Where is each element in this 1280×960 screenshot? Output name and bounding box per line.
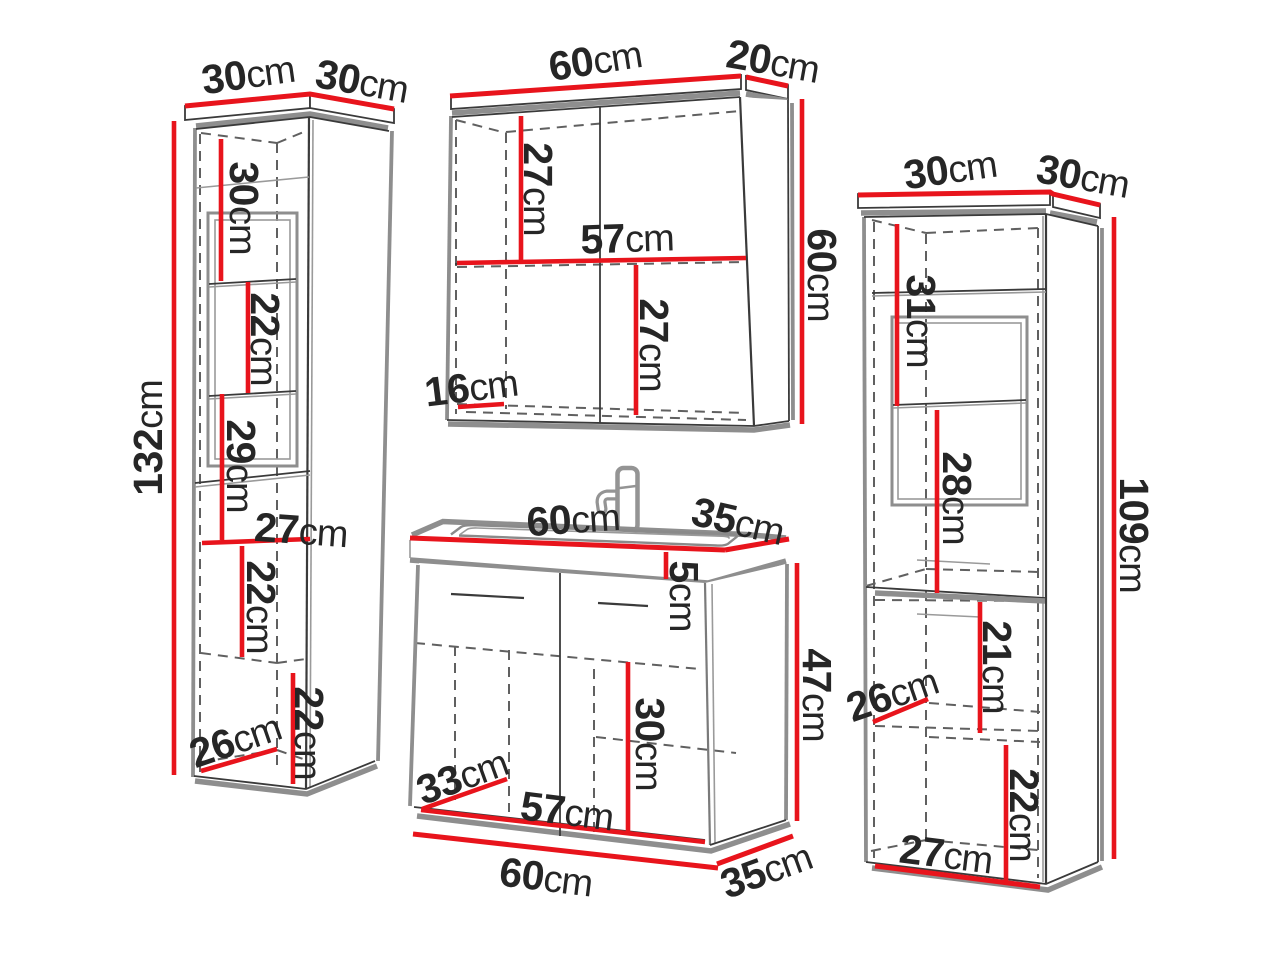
svg-text:31cm: 31cm [898,274,944,367]
svg-text:109cm: 109cm [1111,477,1157,593]
svg-text:22cm: 22cm [1001,768,1047,861]
svg-text:132cm: 132cm [125,380,171,496]
svg-text:30cm: 30cm [221,161,267,254]
svg-text:57cm: 57cm [580,213,675,262]
svg-text:30cm: 30cm [627,697,673,790]
svg-text:27cm: 27cm [631,298,677,391]
svg-text:27cm: 27cm [515,142,561,235]
svg-text:22cm: 22cm [242,292,288,385]
svg-text:47cm: 47cm [794,648,840,741]
svg-text:22cm: 22cm [286,686,332,779]
svg-text:60cm: 60cm [799,228,845,321]
svg-text:21cm: 21cm [974,620,1020,713]
svg-text:5cm: 5cm [661,561,707,632]
svg-text:28cm: 28cm [934,451,980,544]
svg-text:60cm: 60cm [525,493,621,545]
svg-text:22cm: 22cm [238,560,284,653]
svg-text:29cm: 29cm [218,419,264,512]
